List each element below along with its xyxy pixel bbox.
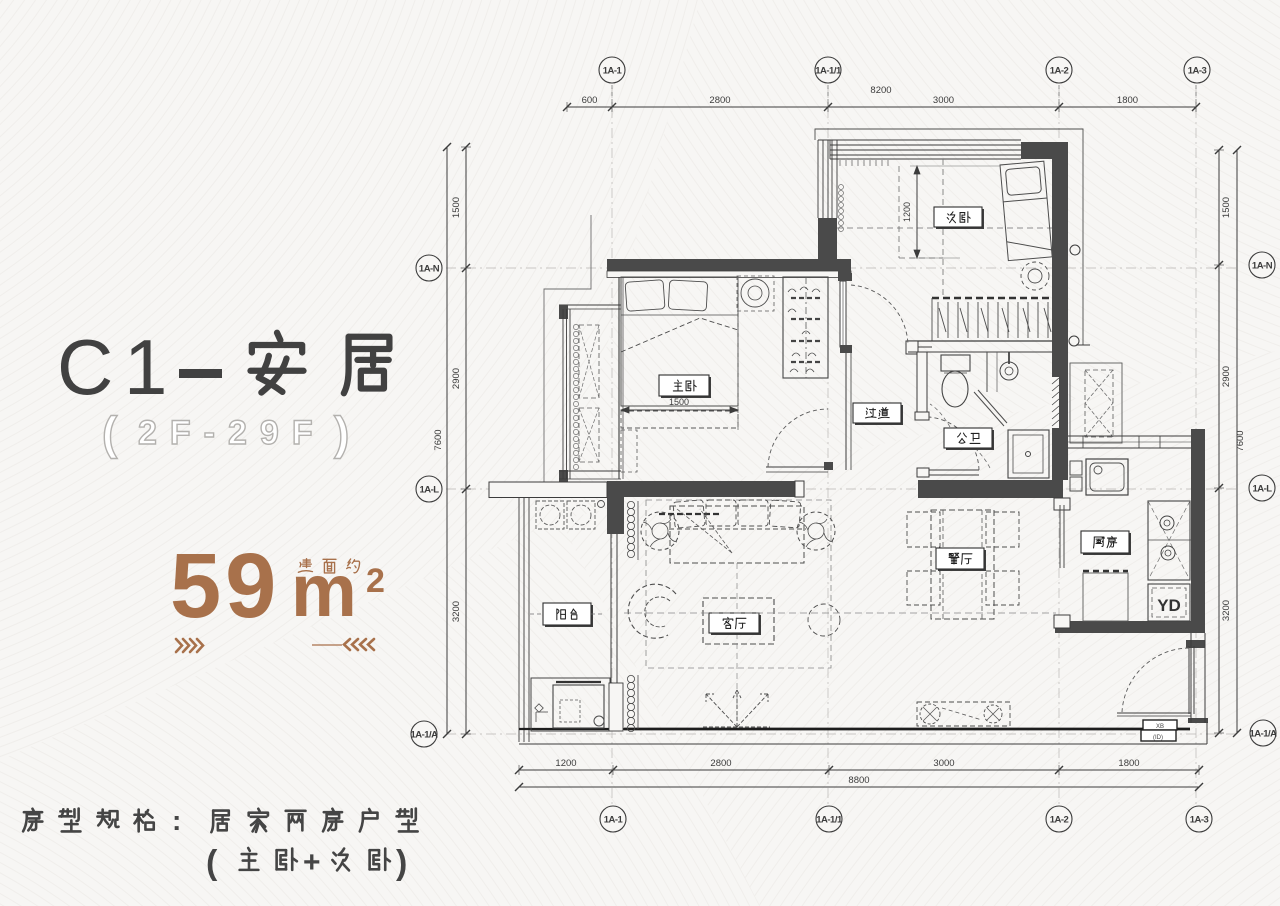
svg-text:1A-2: 1A-2 xyxy=(1050,815,1069,826)
svg-text:1A-1: 1A-1 xyxy=(604,815,624,826)
svg-text:XB: XB xyxy=(1156,724,1164,730)
svg-text:YD: YD xyxy=(1157,596,1181,615)
svg-text:1500: 1500 xyxy=(1221,197,1232,218)
svg-text:1A-1/1: 1A-1/1 xyxy=(816,815,843,826)
svg-text:1500: 1500 xyxy=(669,397,689,407)
svg-text:1A-L: 1A-L xyxy=(1252,484,1272,495)
svg-text:): ) xyxy=(396,844,407,882)
svg-text:(ID): (ID) xyxy=(1153,735,1163,741)
svg-text:2: 2 xyxy=(366,562,385,600)
svg-text:1200: 1200 xyxy=(902,202,912,222)
svg-text:3000: 3000 xyxy=(933,95,954,106)
svg-text:1A-2: 1A-2 xyxy=(1050,66,1069,77)
svg-text:m: m xyxy=(291,549,357,632)
svg-text:1200: 1200 xyxy=(555,758,576,769)
svg-text:1A-3: 1A-3 xyxy=(1188,66,1207,77)
svg-text:7600: 7600 xyxy=(1235,430,1246,451)
svg-text:1: 1 xyxy=(124,323,167,411)
svg-text:3200: 3200 xyxy=(451,601,462,622)
svg-text:7600: 7600 xyxy=(433,429,444,450)
svg-text:1800: 1800 xyxy=(1118,758,1139,769)
svg-text:1A-1/A: 1A-1/A xyxy=(410,730,438,741)
svg-text:600: 600 xyxy=(582,95,598,106)
svg-text:2900: 2900 xyxy=(451,368,462,389)
svg-text:): ) xyxy=(334,407,349,459)
svg-text:1A-1/A: 1A-1/A xyxy=(1249,729,1277,740)
svg-text:2800: 2800 xyxy=(710,758,731,769)
svg-text:1A-1/1: 1A-1/1 xyxy=(815,66,842,77)
svg-text:1A-N: 1A-N xyxy=(419,264,440,275)
svg-text:1500: 1500 xyxy=(451,197,462,218)
svg-text:2900: 2900 xyxy=(1221,366,1232,387)
svg-text:C: C xyxy=(57,323,113,411)
svg-text:3000: 3000 xyxy=(933,758,954,769)
svg-text:+: + xyxy=(303,846,321,879)
svg-text:3200: 3200 xyxy=(1221,600,1232,621)
svg-text:1A-3: 1A-3 xyxy=(1190,815,1209,826)
svg-text:2800: 2800 xyxy=(709,95,730,106)
svg-text:8200: 8200 xyxy=(870,85,891,96)
svg-text:1800: 1800 xyxy=(1117,95,1138,106)
svg-text:2F-29F: 2F-29F xyxy=(138,414,326,452)
svg-text::: : xyxy=(172,805,181,836)
svg-text:(: ( xyxy=(102,407,118,459)
svg-text:8800: 8800 xyxy=(848,775,869,786)
svg-text:59: 59 xyxy=(170,535,280,637)
svg-text:1A-1: 1A-1 xyxy=(603,66,623,77)
svg-text:(: ( xyxy=(206,844,218,882)
svg-text:1A-L: 1A-L xyxy=(419,485,439,496)
svg-text:1A-N: 1A-N xyxy=(1252,261,1273,272)
